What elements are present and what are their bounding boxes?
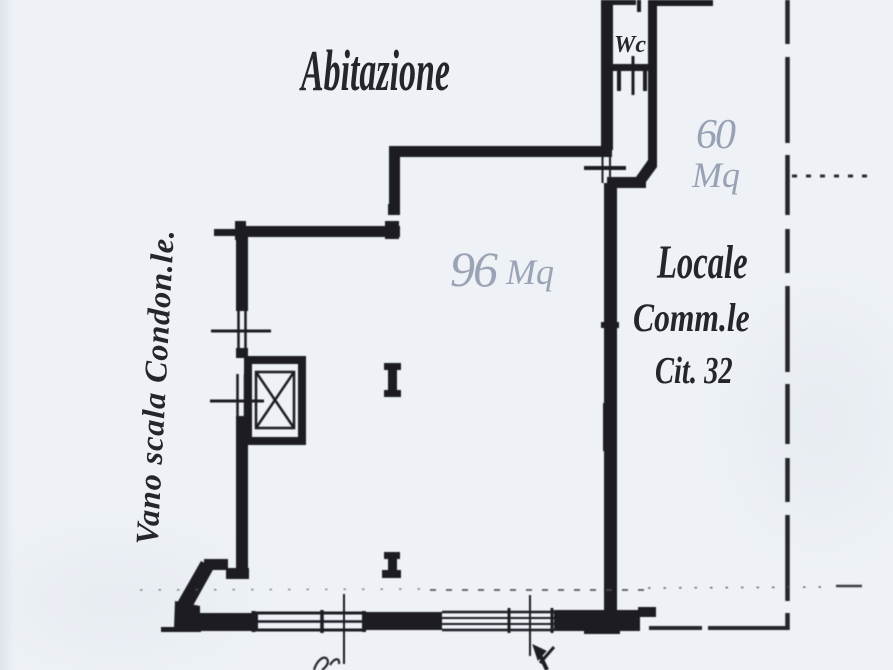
svg-text:60: 60 (696, 112, 736, 158)
svg-text:Cit. 32: Cit. 32 (655, 350, 733, 392)
svg-text:Abitazione: Abitazione (299, 40, 450, 103)
svg-text:Wc: Wc (614, 32, 646, 58)
svg-text:Mq: Mq (691, 155, 740, 195)
svg-text:96: 96 (450, 241, 498, 297)
svg-text:Comm.le: Comm.le (633, 295, 750, 339)
svg-text:Locale: Locale (656, 235, 747, 289)
svg-text:Mq: Mq (505, 252, 554, 292)
